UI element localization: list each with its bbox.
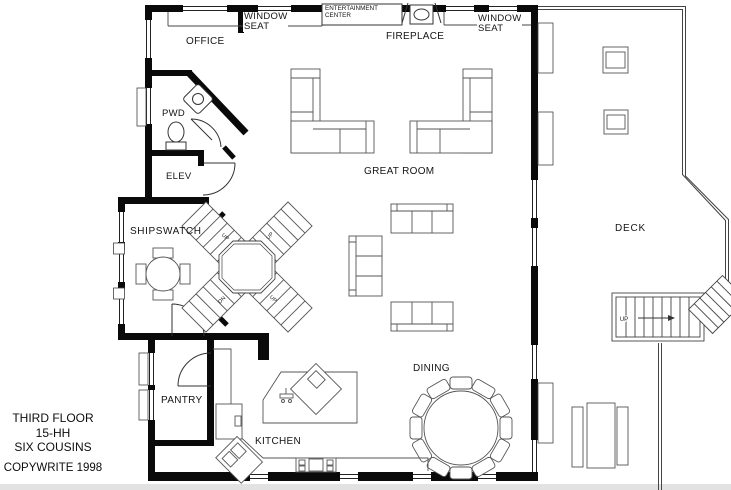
label-fireplace: FIREPLACE <box>386 31 444 42</box>
deck-stairs <box>612 275 731 341</box>
room-label-window-seat-left: WINDOW SEAT <box>243 12 288 32</box>
room-label-shipswatch: SHIPSWATCH <box>130 226 202 237</box>
room-label-deck: DECK <box>615 223 646 234</box>
room-label-kitchen: KITCHEN <box>255 436 301 447</box>
window-seat-left-line2: SEAT <box>244 22 287 32</box>
deck-chair-lower <box>604 110 628 134</box>
deck-stair-up-label: UP <box>620 317 628 323</box>
room-label-elev: ELEV <box>166 171 192 182</box>
entertainment-center-line2: CENTER <box>325 13 378 20</box>
deck-outline <box>538 7 729 490</box>
title-floor: THIRD FLOOR <box>0 411 106 426</box>
window-seat-right-line2: SEAT <box>478 24 521 34</box>
room-label-pantry: PANTRY <box>161 395 202 406</box>
deck-picnic-table <box>572 403 628 468</box>
kitchen-island <box>263 364 357 423</box>
x-stair <box>182 202 312 332</box>
title-plan-number: 15-HH <box>0 426 106 441</box>
sink-icon <box>182 83 213 114</box>
room-label-dining: DINING <box>413 363 450 374</box>
title-plan-name: SIX COUSINS <box>0 440 106 455</box>
sofa-group-middle <box>349 204 453 331</box>
room-label-great-room: GREAT ROOM <box>364 166 434 177</box>
deck-chair-upper <box>603 47 628 73</box>
room-label-window-seat-right: WINDOW SEAT <box>477 14 522 34</box>
dining-table <box>410 377 512 479</box>
title-copyright: COPYWRITE 1998 <box>0 461 106 476</box>
sofa-sectional-right <box>410 69 492 153</box>
room-label-pwd: PWD <box>162 108 185 119</box>
floorplan-page: UP <box>0 0 731 490</box>
range-stove <box>296 458 336 472</box>
toilet-icon <box>166 122 186 150</box>
sofa-sectional-left <box>291 69 374 153</box>
room-label-office: OFFICE <box>186 36 224 47</box>
floorplan-drawing: UP <box>0 0 731 490</box>
refrigerator <box>216 404 242 439</box>
title-block: THIRD FLOOR 15-HH SIX COUSINS COPYWRITE … <box>0 411 106 475</box>
label-entertainment-center: ENTERTAINMENT CENTER <box>325 6 378 20</box>
shipswatch-table <box>136 248 190 300</box>
